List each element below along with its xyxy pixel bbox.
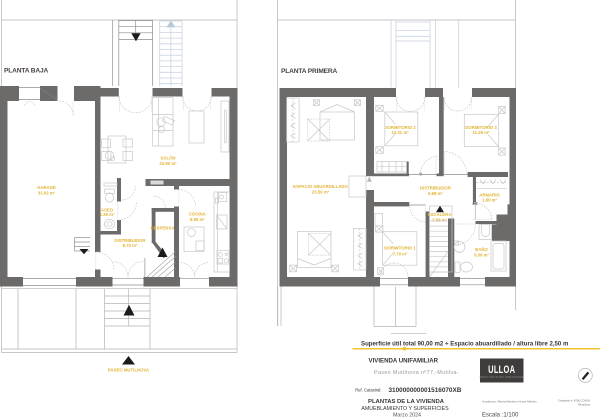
svg-text:Arquitecto: María Martínez-Ima: Arquitecto: María Martínez-Imaz Mibiles	[482, 400, 537, 404]
svg-text:1.35 m²: 1.35 m²	[100, 212, 115, 217]
svg-text:11.29 m²: 11.29 m²	[473, 130, 491, 135]
svg-text:ARQUITECTURA URBANISMO: ARQUITECTURA URBANISMO	[479, 375, 524, 379]
svg-text:DISTRIBUIDOR: DISTRIBUIDOR	[420, 185, 452, 190]
svg-text:31.02 m²: 31.02 m²	[38, 190, 56, 195]
svg-text:Paseo Mutilnova nº77,-Mutilva-: Paseo Mutilnova nº77,-Mutilva-	[374, 370, 459, 376]
svg-text:DORMITORIO 1: DORMITORIO 1	[384, 245, 416, 250]
svg-text:1.89 m²: 1.89 m²	[482, 198, 497, 203]
svg-text:PLANTA BAJA: PLANTA BAJA	[4, 68, 49, 75]
svg-text:Escala :1/100: Escala :1/100	[482, 412, 519, 418]
svg-text:PASEO MUTILNOVA: PASEO MUTILNOVA	[108, 368, 149, 373]
svg-text:ESPACIO ABUARDILLADO: ESPACIO ABUARDILLADO	[293, 184, 348, 189]
svg-text:Ref. Catastral:: Ref. Catastral:	[355, 388, 381, 393]
svg-text:6.98 m²: 6.98 m²	[428, 191, 443, 196]
svg-text:COCINA: COCINA	[189, 212, 206, 217]
svg-text:PLANTA PRIMERA: PLANTA PRIMERA	[281, 68, 338, 75]
svg-text:VIVIENDA UNIFAMILIAR: VIVIENDA UNIFAMILIAR	[369, 358, 439, 365]
svg-text:5.36 m²: 5.36 m²	[474, 253, 489, 258]
svg-text:Superficie útil total 90,00 m2: Superficie útil total 90,00 m2 + Espacio…	[361, 340, 569, 347]
svg-text:Colegiado nº 4256 COAVN: Colegiado nº 4256 COAVN	[558, 398, 590, 402]
svg-text:310000000001516070XB: 310000000001516070XB	[389, 387, 462, 394]
svg-text:DESPENSA: DESPENSA	[151, 225, 175, 230]
svg-text:9.95 m²: 9.95 m²	[190, 217, 205, 222]
svg-text:23.90 m²: 23.90 m²	[159, 161, 177, 166]
svg-text:2.99 m²: 2.99 m²	[432, 217, 447, 222]
svg-text:7.70 m²: 7.70 m²	[393, 252, 408, 257]
svg-text:GARAGE: GARAGE	[37, 185, 56, 190]
svg-text:Marzo 2024: Marzo 2024	[393, 412, 421, 418]
svg-text:ULLOA: ULLOA	[488, 362, 515, 375]
svg-text:AMUEBLAMIENTO Y SUPERFICIES: AMUEBLAMIENTO Y SUPERFICIES	[361, 406, 449, 412]
svg-text:PLANTAS DE LA VIVIENDA: PLANTAS DE LA VIVIENDA	[368, 399, 445, 405]
svg-text:BAÑO: BAÑO	[475, 247, 488, 252]
svg-text:10.31 m²: 10.31 m²	[391, 130, 409, 135]
svg-text:8.70 m²: 8.70 m²	[123, 243, 138, 248]
svg-text:Pamplona: Pamplona	[578, 403, 591, 407]
svg-text:SALÓN: SALÓN	[160, 155, 175, 160]
svg-text:23.50 m²: 23.50 m²	[312, 189, 330, 194]
